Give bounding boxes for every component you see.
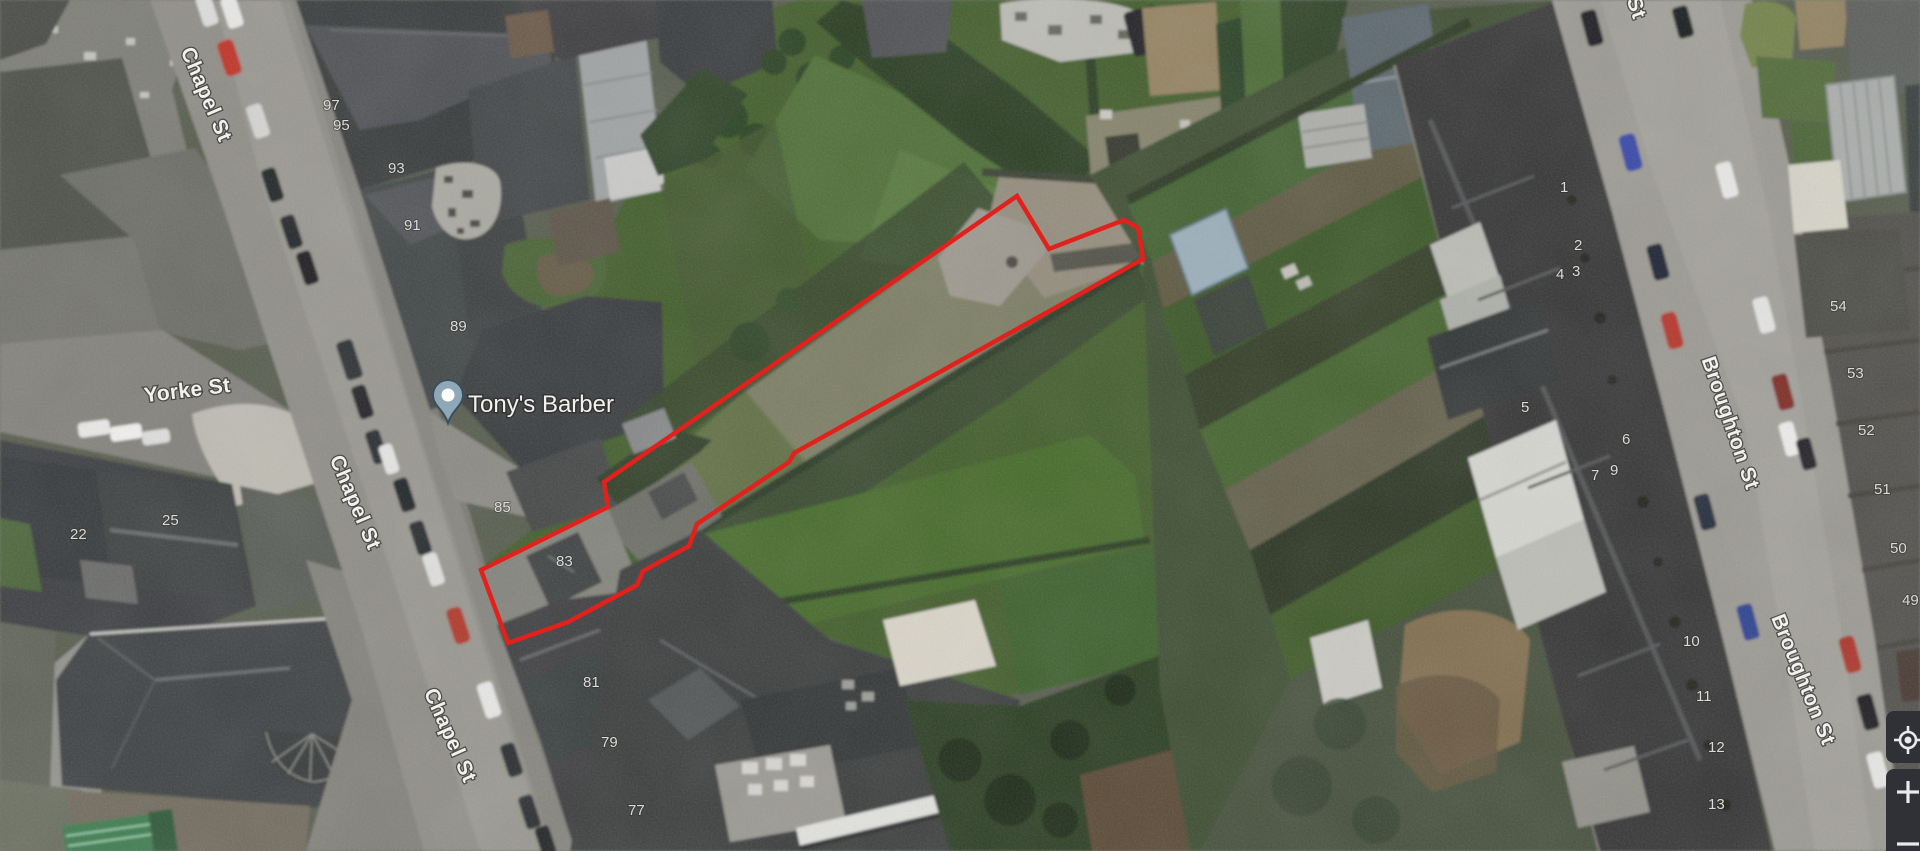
svg-text:89: 89 xyxy=(450,318,467,335)
svg-text:7: 7 xyxy=(1591,467,1599,484)
svg-text:85: 85 xyxy=(494,499,511,516)
svg-text:49: 49 xyxy=(1902,592,1919,609)
svg-text:22: 22 xyxy=(70,526,87,543)
svg-text:5: 5 xyxy=(1521,399,1529,416)
svg-text:52: 52 xyxy=(1858,422,1875,439)
svg-text:6: 6 xyxy=(1622,431,1630,448)
svg-text:93: 93 xyxy=(388,160,405,177)
svg-text:79: 79 xyxy=(601,734,618,751)
svg-text:10: 10 xyxy=(1683,633,1700,650)
svg-text:Tony's Barber: Tony's Barber xyxy=(468,391,614,418)
svg-text:51: 51 xyxy=(1874,481,1891,498)
svg-text:25: 25 xyxy=(162,512,179,529)
svg-text:50: 50 xyxy=(1890,540,1907,557)
svg-text:91: 91 xyxy=(404,217,421,234)
svg-text:54: 54 xyxy=(1830,298,1847,315)
svg-text:4: 4 xyxy=(1556,266,1564,283)
svg-text:2: 2 xyxy=(1574,237,1582,254)
svg-text:81: 81 xyxy=(583,674,600,691)
svg-text:13: 13 xyxy=(1708,796,1725,813)
svg-text:95: 95 xyxy=(333,117,350,134)
svg-text:1: 1 xyxy=(1560,179,1568,196)
svg-text:83: 83 xyxy=(556,553,573,570)
svg-text:12: 12 xyxy=(1708,739,1725,756)
svg-text:77: 77 xyxy=(628,802,645,819)
svg-text:9: 9 xyxy=(1610,462,1618,479)
svg-text:11: 11 xyxy=(1696,688,1712,705)
svg-text:3: 3 xyxy=(1572,263,1580,280)
svg-text:97: 97 xyxy=(323,97,340,114)
svg-text:53: 53 xyxy=(1847,365,1864,382)
